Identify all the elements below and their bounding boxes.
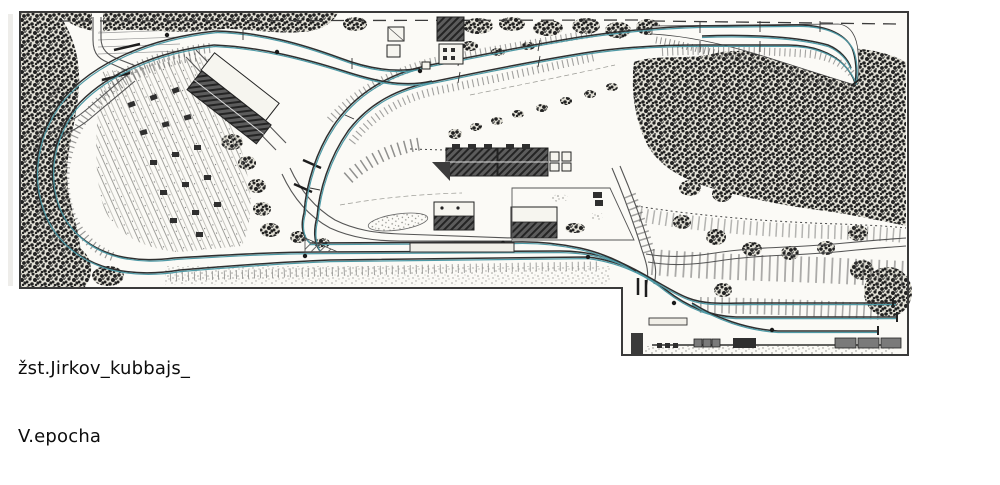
locomotive <box>733 338 756 348</box>
platform <box>410 243 514 252</box>
scanned-track-plan-page: žst.Jirkov_kubbajs_ V.epocha TT/1:120 26… <box>0 0 1000 485</box>
ballast-speckle <box>165 266 610 285</box>
retaining-wall <box>631 333 643 356</box>
caption-era: V.epocha <box>18 426 331 449</box>
goods-shed <box>434 202 474 230</box>
lower-yard-ramp <box>649 318 687 325</box>
station-building <box>511 207 557 238</box>
lower-yard-speckle <box>645 346 895 355</box>
scan-edge-shadow <box>8 14 13 286</box>
caption-block: žst.Jirkov_kubbajs_ V.epocha TT/1:120 26… <box>18 313 331 485</box>
caption-station-name: žst.Jirkov_kubbajs_ <box>18 358 331 381</box>
